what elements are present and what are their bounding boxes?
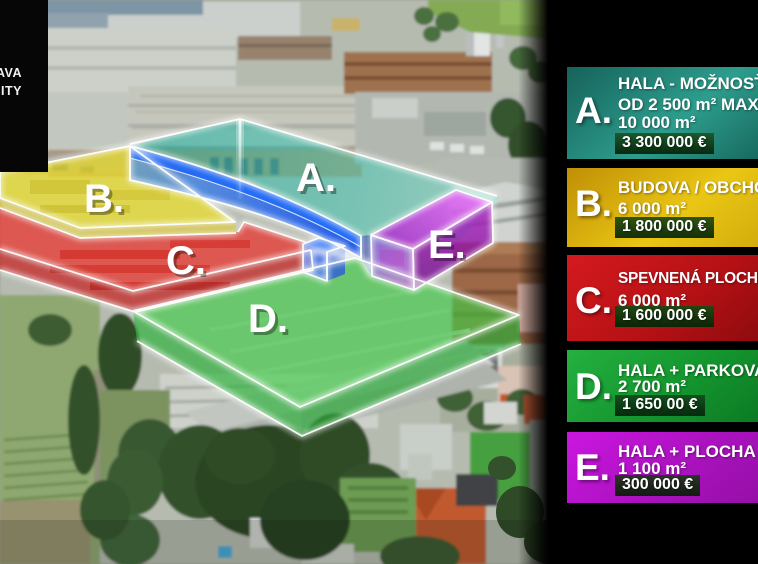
svg-text:E.: E.	[428, 223, 466, 267]
svg-text:C.: C.	[166, 239, 206, 283]
svg-text:B.: B.	[84, 177, 124, 221]
svg-text:D.: D.	[248, 297, 288, 341]
svg-text:A.: A.	[296, 156, 336, 200]
